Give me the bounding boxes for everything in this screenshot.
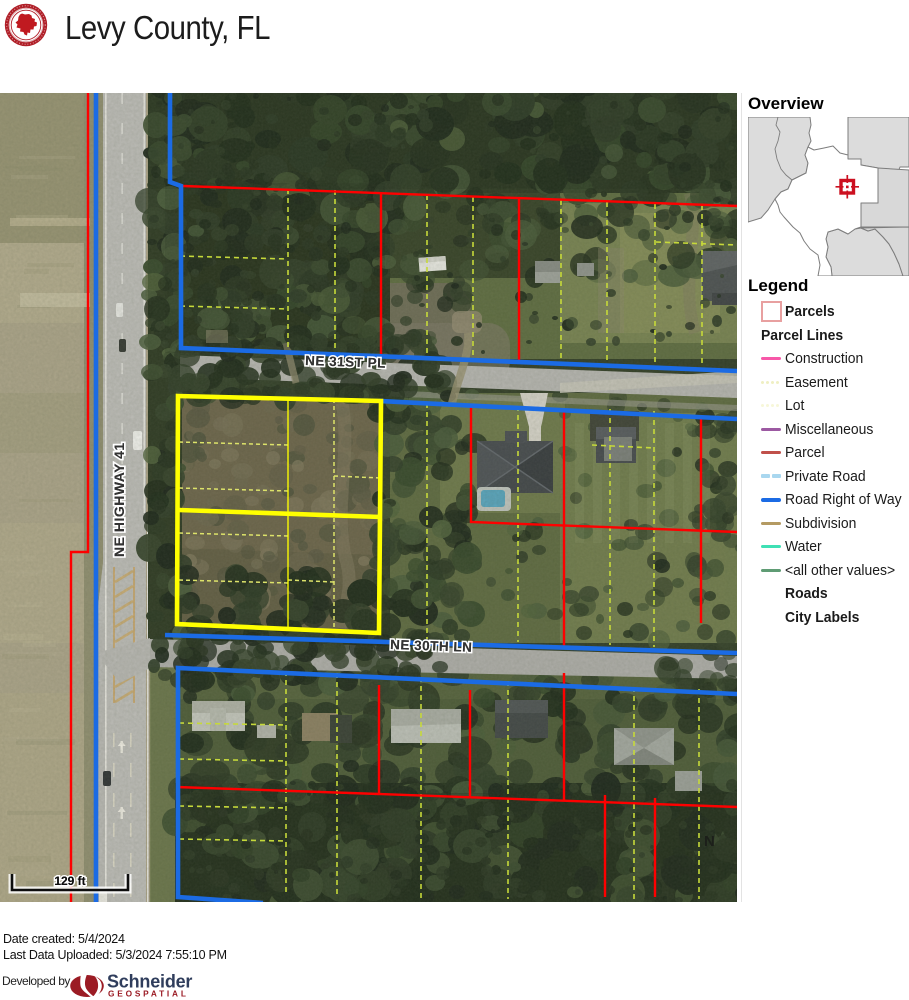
svg-text:129 ft: 129 ft	[54, 874, 85, 888]
svg-text:NE 31ST PL: NE 31ST PL	[305, 353, 386, 371]
svg-text:N: N	[704, 833, 715, 850]
svg-text:GEOSPATIAL: GEOSPATIAL	[108, 989, 189, 999]
svg-text:NE HIGHWAY 41: NE HIGHWAY 41	[111, 442, 127, 557]
svg-text:NE 30TH LN: NE 30TH LN	[390, 637, 473, 655]
